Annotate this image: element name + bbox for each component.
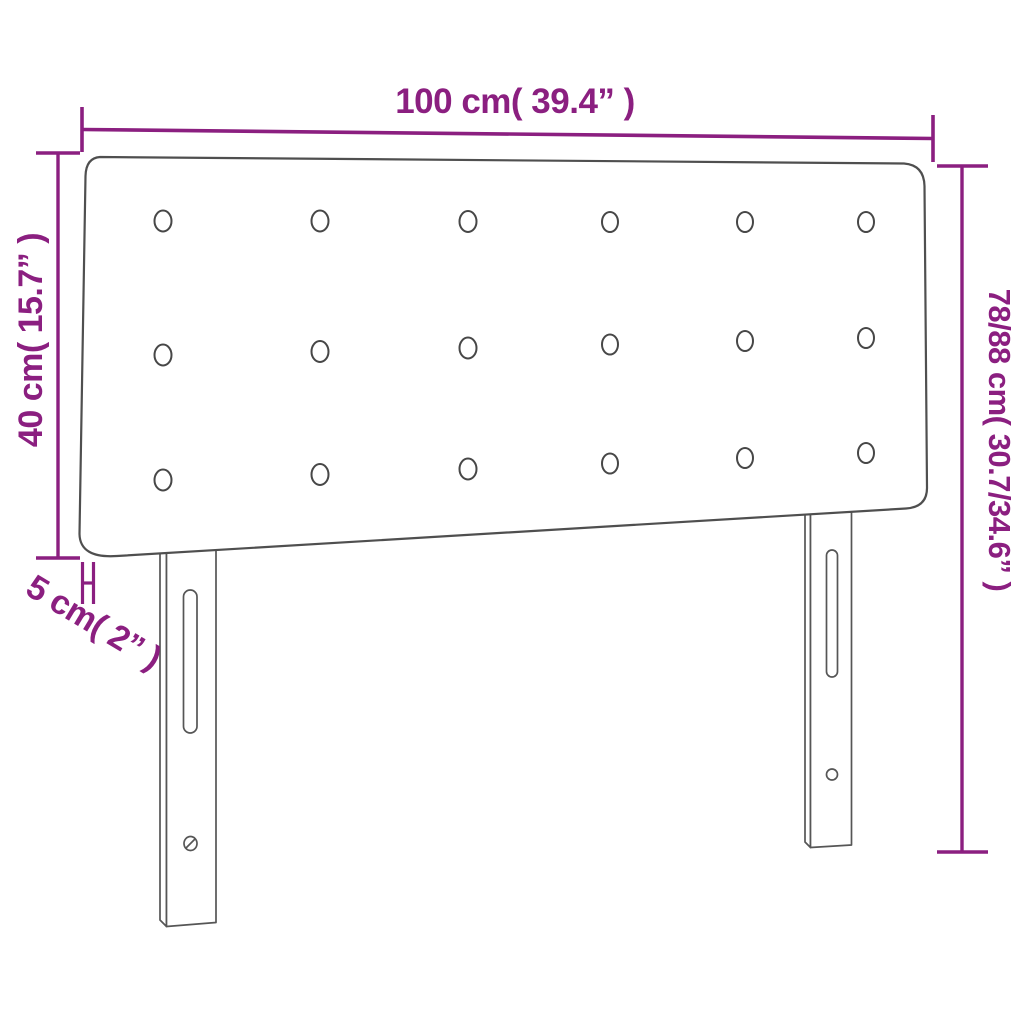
button-tuft — [602, 212, 618, 232]
button-tuft — [460, 338, 477, 359]
button-tuft — [312, 211, 329, 232]
button-tuft — [312, 341, 329, 362]
button-tuft — [737, 212, 753, 232]
button-tuft — [155, 470, 172, 491]
button-tuft — [737, 331, 753, 351]
diagram-canvas: 100 cm( 39.4” ) 40 cm( 15.7” ) 5 cm( 2” … — [0, 0, 1024, 1024]
right-leg-screw-hole — [827, 769, 838, 780]
headboard-height-dimension-label: 40 cm( 15.7” ) — [12, 233, 50, 447]
headboard-left-leg — [160, 542, 216, 927]
width-dim-line — [82, 130, 933, 139]
left-leg-slot — [184, 590, 198, 733]
button-tuft — [858, 328, 874, 348]
button-tuft — [312, 464, 329, 485]
button-tuft — [737, 448, 753, 468]
dimension-diagram: 100 cm( 39.4” ) 40 cm( 15.7” ) 5 cm( 2” … — [0, 0, 1024, 1024]
button-tuft — [602, 335, 618, 355]
button-tuft — [858, 443, 874, 463]
button-tuft — [155, 345, 172, 366]
right-leg-slot — [827, 550, 838, 677]
button-tuft — [858, 212, 874, 232]
width-dimension-label: 100 cm( 39.4” ) — [395, 82, 635, 121]
button-tuft — [460, 459, 477, 480]
button-tuft — [460, 211, 477, 232]
left-leg-side-face — [160, 545, 167, 927]
headboard-right-leg — [805, 502, 852, 848]
button-tuft — [602, 454, 618, 474]
headboard-outline — [80, 157, 928, 556]
button-tuft — [155, 211, 172, 232]
total-height-dimension-label: 78/88 cm( 30.7/34.6” ) — [982, 289, 1017, 592]
dimension-total-height — [937, 166, 988, 852]
